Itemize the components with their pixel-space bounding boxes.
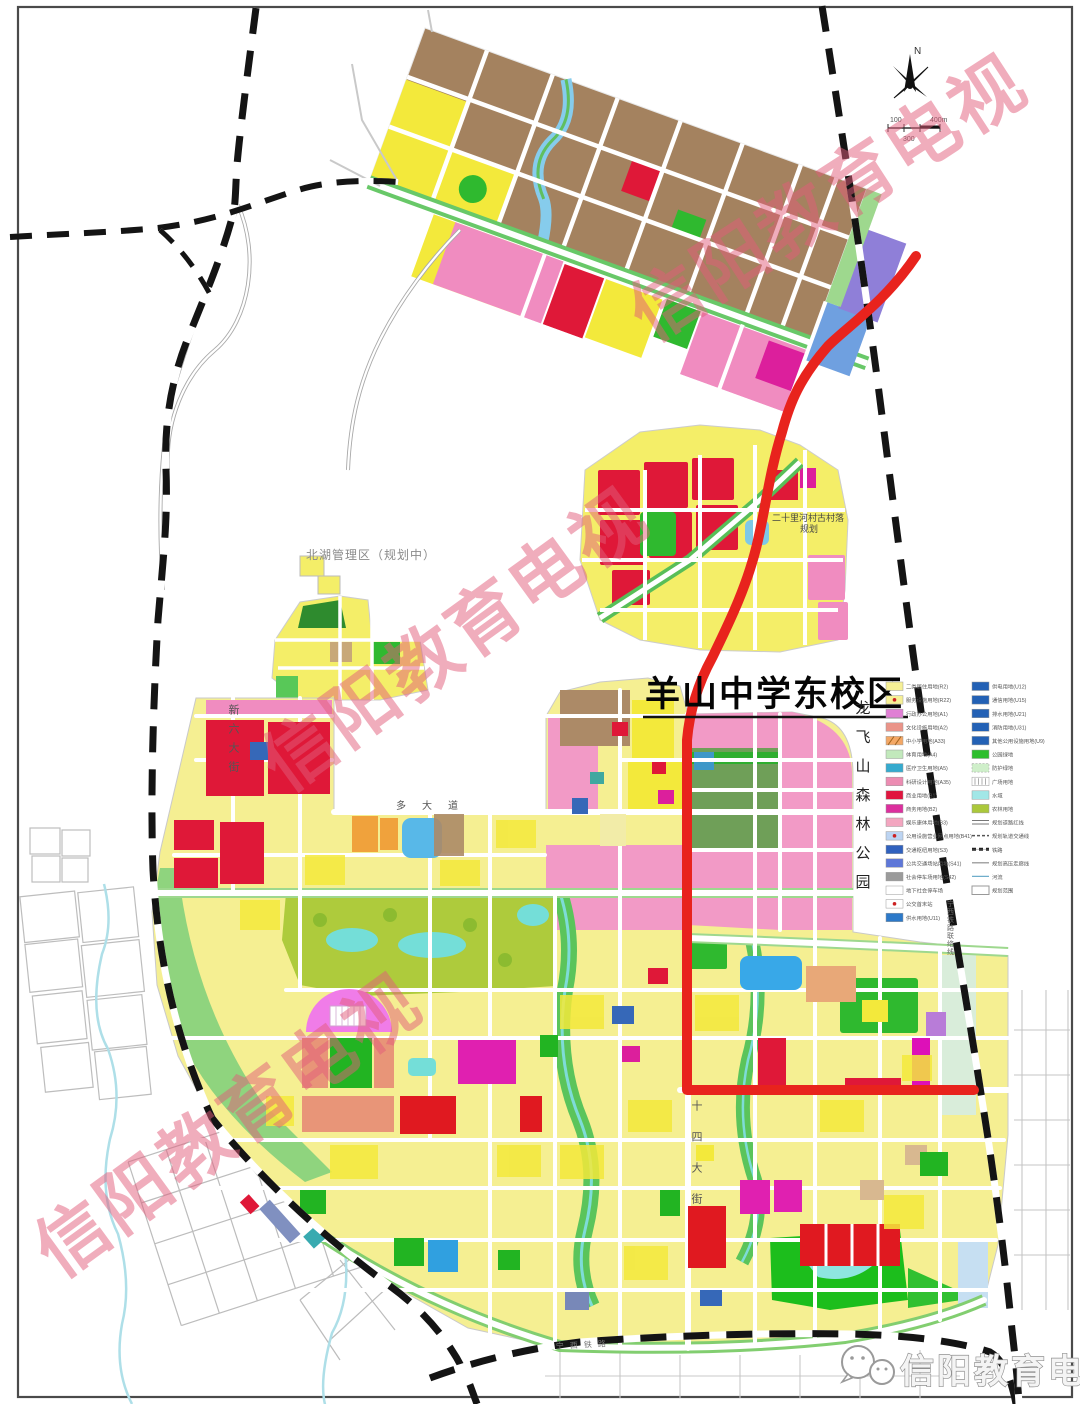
legend-item-label: 娱乐康体用地(B3) bbox=[906, 819, 948, 827]
legend-item-label: 规划轨道交通线 bbox=[992, 832, 1030, 840]
village-label-line1: 二十里河村古村落 bbox=[772, 512, 844, 523]
legend-item-label: 广场用地 bbox=[992, 778, 1014, 786]
legend-item-label: 社会停车场用地(S42) bbox=[906, 873, 956, 881]
legend-item-label: 公共交通场站用地(S41) bbox=[906, 859, 962, 867]
road-label-shisi: 十四大街 bbox=[690, 1099, 703, 1224]
legend-item-label: 地下社会停车场 bbox=[906, 887, 943, 895]
legend-item-label: 规划道路红线 bbox=[992, 819, 1024, 827]
planning-map-image: 羊山中学东校区 北湖管理区（规划中） 二十里河村古村落 规划 龙飞山森林公园 新… bbox=[0, 0, 1080, 1404]
planning-map-page: 羊山中学东校区 北湖管理区（规划中） 二十里河村古村落 规划 龙飞山森林公园 新… bbox=[0, 0, 1080, 1404]
footer-brand-label: 信阳教育电视 bbox=[900, 1353, 1080, 1391]
legend-item-label: 铁路 bbox=[992, 846, 1003, 854]
legend-item-label: 医疗卫生用地(A5) bbox=[906, 764, 948, 772]
rail-branch-label: 宁西铁路联络线 bbox=[947, 899, 955, 956]
road-label-xinliu: 新六大街 bbox=[227, 703, 240, 780]
legend-item-label: 公园绿地 bbox=[992, 751, 1014, 759]
legend-item-label: 服务设施用地(R22) bbox=[906, 696, 951, 704]
legend-item-label: 防护绿地 bbox=[992, 764, 1014, 772]
compass-n-label: N bbox=[914, 46, 921, 57]
legend-item-label: 交通枢纽用地(S3) bbox=[906, 846, 948, 854]
legend-item-label: 规划高压走廊线 bbox=[992, 859, 1030, 867]
forest-park-label: 龙飞山森林公园 bbox=[854, 700, 871, 903]
road-label-duo: 多大道 bbox=[396, 799, 474, 812]
village-label-line2: 规划 bbox=[800, 523, 818, 534]
legend-item-label: 公用设施营业网点用地(B41) bbox=[906, 832, 972, 840]
legend-item-label: 二类居住用地(R2) bbox=[906, 683, 948, 691]
legend-item-label: 水域 bbox=[992, 791, 1003, 799]
beihu-label: 北湖管理区（规划中） bbox=[306, 547, 436, 562]
legend-item-label: 河流 bbox=[992, 873, 1003, 881]
legend-item-label: 其他公用设施用地(U9) bbox=[992, 737, 1045, 745]
legend-item-label: 公交首末站 bbox=[906, 900, 933, 908]
legend-item-label: 行政办公用地(A1) bbox=[906, 710, 948, 718]
legend-item-label: 消防用地(U31) bbox=[992, 723, 1027, 731]
legend-item-label: 规划范围 bbox=[992, 887, 1013, 895]
legend-item-label: 供电用地(U12) bbox=[992, 683, 1027, 691]
legend-item-label: 中小学用地(A33) bbox=[906, 737, 946, 745]
legend-item-label: 科研设计用地(A35) bbox=[906, 778, 951, 786]
legend-item-label: 体育用地(A4) bbox=[906, 751, 937, 759]
legend-item-label: 通信用地(U15) bbox=[992, 696, 1027, 704]
legend-item-label: 商务用地(B2) bbox=[906, 805, 937, 813]
legend-item-label: 供水用地(U11) bbox=[906, 914, 940, 922]
legend-item-label: 商业用地(B1) bbox=[906, 791, 937, 799]
legend-item-label: 文化设施用地(A2) bbox=[906, 723, 948, 731]
legend-item-label: 排水用地(U21) bbox=[992, 710, 1027, 718]
legend-item-label: 农林用地 bbox=[992, 805, 1014, 813]
